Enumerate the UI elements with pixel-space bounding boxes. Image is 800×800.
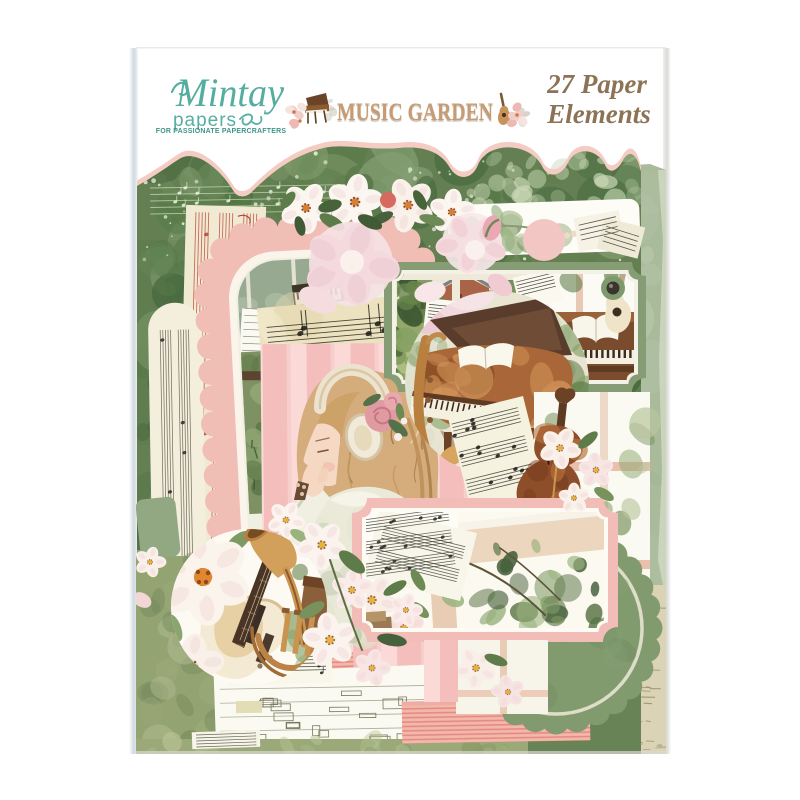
svg-text:Mintay: Mintay bbox=[175, 70, 284, 115]
svg-text:Elements: Elements bbox=[546, 99, 651, 129]
svg-text:FOR PASSIONATE PAPERCRAFTERS: FOR PASSIONATE PAPERCRAFTERS bbox=[156, 128, 287, 135]
svg-text:MUSIC GARDEN: MUSIC GARDEN bbox=[337, 99, 493, 126]
svg-text:27 Paper: 27 Paper bbox=[546, 69, 647, 99]
